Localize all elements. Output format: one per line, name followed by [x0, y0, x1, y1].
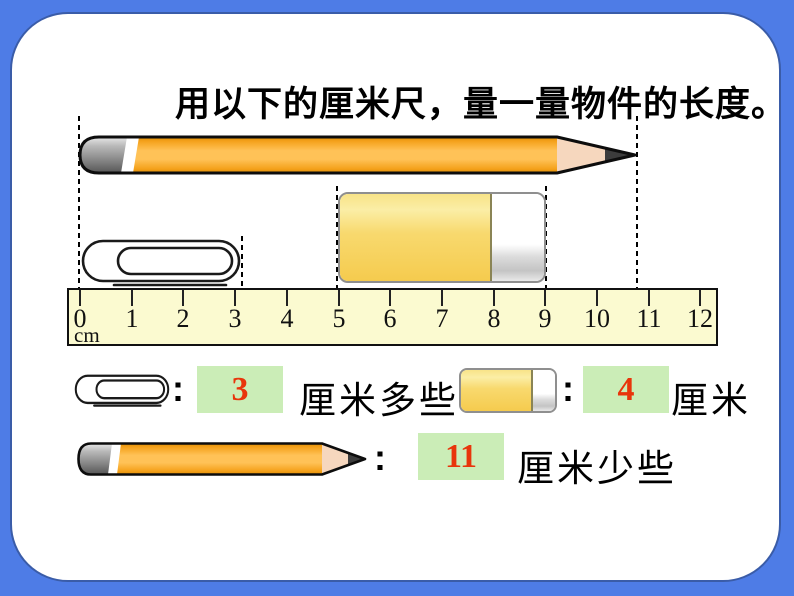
eraser-yellow-part: [340, 194, 492, 281]
ruler-tick-label: 1: [110, 304, 154, 334]
eraser-illustration: [338, 192, 546, 283]
colon: :: [562, 368, 574, 410]
page-title: 用以下的厘米尺，量一量物件的长度。: [175, 76, 755, 127]
paperclip-icon: [74, 373, 170, 407]
eraser-icon: [459, 368, 557, 413]
paperclip-illustration: [80, 237, 242, 287]
ruler-tick-label: 2: [161, 304, 205, 334]
answer-value-box-paperclip: 3: [197, 366, 283, 413]
eraser-white-part: [492, 194, 544, 281]
ruler-tick-label: 9: [523, 304, 567, 334]
colon: :: [374, 437, 386, 479]
eraser-icon-white-part: [533, 370, 555, 411]
eraser-icon-yellow-part: [461, 370, 533, 411]
pencil-illustration: [77, 134, 639, 176]
answer-value-box-eraser: 4: [583, 366, 669, 413]
ruler-tick-label: 8: [472, 304, 516, 334]
answer-unit-text-eraser: 厘米: [671, 370, 751, 424]
ruler-tick-label: 3: [213, 304, 257, 334]
pencil-icon: [76, 441, 368, 477]
ruler-tick-label: 5: [317, 304, 361, 334]
ruler-tick-label: 10: [575, 304, 619, 334]
ruler-tick-label: 12: [678, 304, 722, 334]
colon: :: [172, 368, 184, 410]
ruler-unit-label: cm: [74, 323, 100, 348]
centimeter-ruler: 0 1 2 3 4 5 6 7 8 9 10 11 12 cm: [67, 288, 718, 346]
ruler-tick-label: 6: [368, 304, 412, 334]
answer-unit-text-paperclip: 厘米多些: [299, 370, 459, 424]
ruler-tick-label: 11: [627, 304, 671, 334]
answer-unit-text-pencil: 厘米少些: [517, 438, 677, 492]
answer-value-box-pencil: 11: [418, 433, 504, 480]
ruler-tick-label: 4: [265, 304, 309, 334]
slide-frame: 用以下的厘米尺，量一量物件的长度。 0: [0, 0, 794, 596]
ruler-tick-label: 7: [420, 304, 464, 334]
